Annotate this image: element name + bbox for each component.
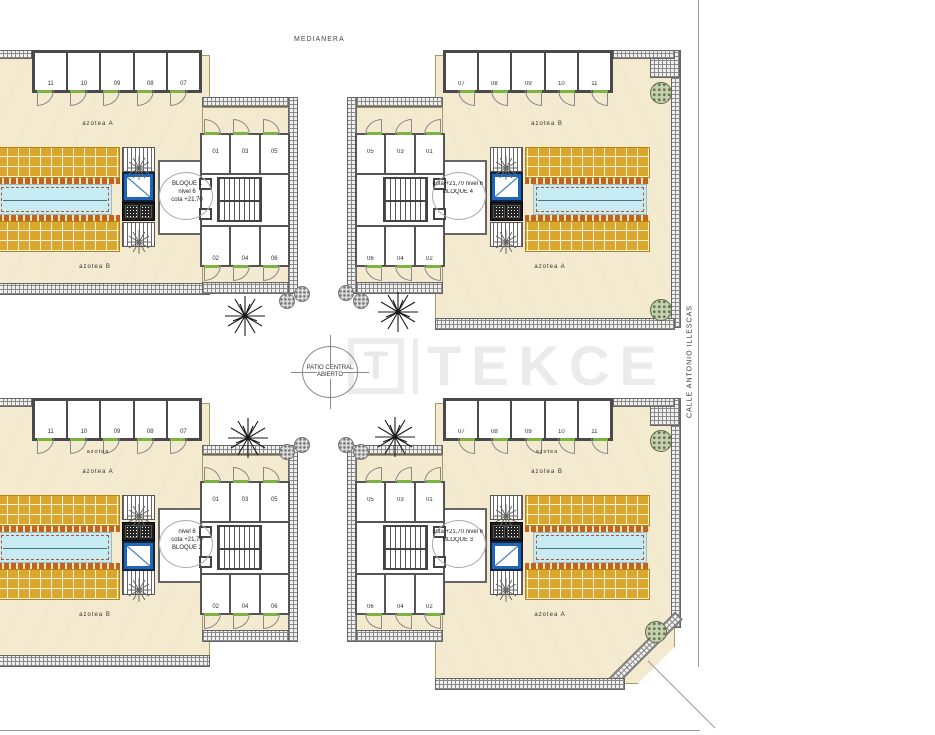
pool-deck <box>525 147 650 252</box>
rooms-row: 01 03 05 <box>355 133 445 175</box>
storage-room: 08 <box>133 401 166 438</box>
room: 05 <box>357 483 386 521</box>
terrace-label: azotea A <box>534 612 565 618</box>
deck-tiles <box>525 221 650 252</box>
terrace-label: azotea A <box>82 469 113 475</box>
bush-symbol <box>338 437 354 453</box>
terrace-label: azotea B <box>79 264 111 270</box>
bush-symbol <box>279 293 295 309</box>
street-label: CALLE ANTONIO ILLESCAS <box>687 282 694 442</box>
room: 02 <box>202 575 229 613</box>
bush-symbol <box>645 621 667 643</box>
pool <box>533 184 647 215</box>
storage-room: 10 <box>546 401 579 438</box>
storage-room: 11 <box>579 401 610 438</box>
parapet-hatch <box>0 398 32 407</box>
block-info: nivel 6 cota +21,70 BLOQUE 4 <box>429 181 487 197</box>
room: 01 <box>416 135 443 173</box>
tree-symbol <box>226 416 270 460</box>
terrace-label: azotea <box>536 449 559 455</box>
storage-room: 11 <box>579 53 610 90</box>
plant-symbol <box>493 577 519 603</box>
patio-central-marker: PATIO CENTRAL ABIERTO <box>302 346 358 398</box>
rooms-row: 01 03 05 <box>200 481 290 523</box>
room: 06 <box>259 227 288 265</box>
room: 03 <box>386 135 415 173</box>
plant-symbol <box>126 155 152 181</box>
deck-tiles <box>0 147 120 178</box>
storage-room: 08 <box>133 53 166 90</box>
room: 04 <box>386 575 415 613</box>
room: 03 <box>229 135 258 173</box>
room: 06 <box>259 575 288 613</box>
elevator-machinery <box>490 202 523 221</box>
elevator <box>490 541 523 571</box>
parapet-hatch <box>0 50 32 59</box>
pool <box>0 532 112 563</box>
storage-room: 09 <box>512 401 545 438</box>
plant-symbol <box>126 577 152 603</box>
room: 01 <box>202 135 229 173</box>
storage-room: 08 <box>479 401 512 438</box>
room: 02 <box>202 227 229 265</box>
elevator-machinery <box>122 202 155 221</box>
bush-symbol <box>353 444 369 460</box>
deck-tiles <box>525 569 650 600</box>
parapet-hatch <box>202 97 298 107</box>
parapet-hatch <box>435 318 675 330</box>
parapet-hatch <box>613 50 675 59</box>
plant-symbol <box>126 229 152 255</box>
stairwell <box>217 177 262 222</box>
pool <box>0 184 112 215</box>
site-boundary-bottom <box>0 730 700 731</box>
storage-room: 11 <box>35 401 66 438</box>
bush-symbol <box>338 285 354 301</box>
storage-room: 10 <box>546 53 579 90</box>
storage-room: 07 <box>446 401 479 438</box>
rooms-row: 02 04 06 <box>355 225 445 267</box>
storage-row: 11 10 09 08 07 <box>443 50 613 93</box>
terrace-label: azotea B <box>531 121 563 127</box>
rooms-row: 02 04 06 <box>355 573 445 615</box>
parapet-hatch <box>0 655 210 667</box>
boundary-label: MEDIANERA <box>294 36 345 43</box>
tree-symbol <box>376 290 420 334</box>
block-info: BLOQUE 1 nivel 6 cota +21,70 <box>158 181 216 204</box>
room: 06 <box>357 575 386 613</box>
room: 04 <box>386 227 415 265</box>
room: 05 <box>357 135 386 173</box>
bush-symbol <box>279 444 295 460</box>
room: 04 <box>229 575 258 613</box>
storage-room: 10 <box>66 401 99 438</box>
deck-tiles <box>0 495 120 526</box>
plant-symbol <box>493 503 519 529</box>
block-info: nivel 6 cota +21,70 BLOQUE 2 <box>158 529 216 552</box>
bush-symbol <box>650 430 672 452</box>
plant-symbol <box>126 503 152 529</box>
site-boundary-right <box>698 0 699 667</box>
storage-row: 11 10 09 08 07 <box>32 398 202 441</box>
storage-room: 10 <box>66 53 99 90</box>
rooms-row: 02 04 06 <box>200 225 290 267</box>
stairwell <box>383 177 428 222</box>
bush-symbol <box>353 293 369 309</box>
plant-symbol <box>493 229 519 255</box>
terrace-label: azotea A <box>534 264 565 270</box>
parapet-hatch <box>347 97 443 107</box>
parapet-hatch <box>202 282 298 294</box>
patio-label-line2: ABIERTO <box>317 372 343 379</box>
parapet-hatch <box>671 398 681 628</box>
room: 01 <box>416 483 443 521</box>
storage-room: 07 <box>446 53 479 90</box>
terrace-label: azotea B <box>531 469 563 475</box>
room: 04 <box>229 227 258 265</box>
room: 01 <box>202 483 229 521</box>
deck-tiles <box>525 147 650 178</box>
pool <box>533 532 647 563</box>
bush-symbol <box>294 286 310 302</box>
terrace-label: azotea B <box>79 612 111 618</box>
stairwell <box>217 525 262 570</box>
terrace-label: azotea A <box>82 121 113 127</box>
parapet-hatch <box>202 630 298 642</box>
deck-tiles <box>525 495 650 526</box>
tree-symbol <box>373 415 417 459</box>
room: 03 <box>386 483 415 521</box>
stairwell <box>383 525 428 570</box>
room: 03 <box>229 483 258 521</box>
parapet-hatch <box>347 630 443 642</box>
parapet-hatch <box>0 283 210 295</box>
deck-tiles <box>0 569 120 600</box>
floor-plan: T TEKCE 11 10 09 <box>0 0 935 735</box>
pool-deck <box>0 495 120 600</box>
bush-symbol <box>650 299 672 321</box>
block-info: nivel 6 cota +21,70 BLOQUE 3 <box>429 529 487 545</box>
room: 05 <box>259 483 288 521</box>
parapet-hatch <box>613 398 675 407</box>
storage-row: 11 10 09 08 07 <box>443 398 613 441</box>
storage-room: 08 <box>479 53 512 90</box>
storage-room: 09 <box>512 53 545 90</box>
patio-label-line1: PATIO CENTRAL <box>307 365 354 372</box>
bush-symbol <box>294 437 310 453</box>
parapet-hatch <box>671 50 681 328</box>
plant-symbol <box>493 155 519 181</box>
rooms-row: 01 03 05 <box>355 481 445 523</box>
parapet-hatch <box>435 678 625 690</box>
deck-tiles <box>0 221 120 252</box>
rooms-row: 02 04 06 <box>200 573 290 615</box>
pool-deck <box>0 147 120 252</box>
storage-room: 09 <box>99 53 132 90</box>
bush-symbol <box>650 82 672 104</box>
terrace-label: azotea <box>87 449 110 455</box>
storage-room: 07 <box>166 401 199 438</box>
pool-deck <box>525 495 650 600</box>
tree-symbol <box>223 294 267 338</box>
room: 02 <box>416 575 443 613</box>
elevator <box>122 541 155 571</box>
rooms-row: 01 03 05 <box>200 133 290 175</box>
storage-row: 11 10 09 08 07 <box>32 50 202 93</box>
room: 02 <box>416 227 443 265</box>
storage-room: 11 <box>35 53 66 90</box>
room: 05 <box>259 135 288 173</box>
room: 06 <box>357 227 386 265</box>
storage-room: 07 <box>166 53 199 90</box>
storage-room: 09 <box>99 401 132 438</box>
